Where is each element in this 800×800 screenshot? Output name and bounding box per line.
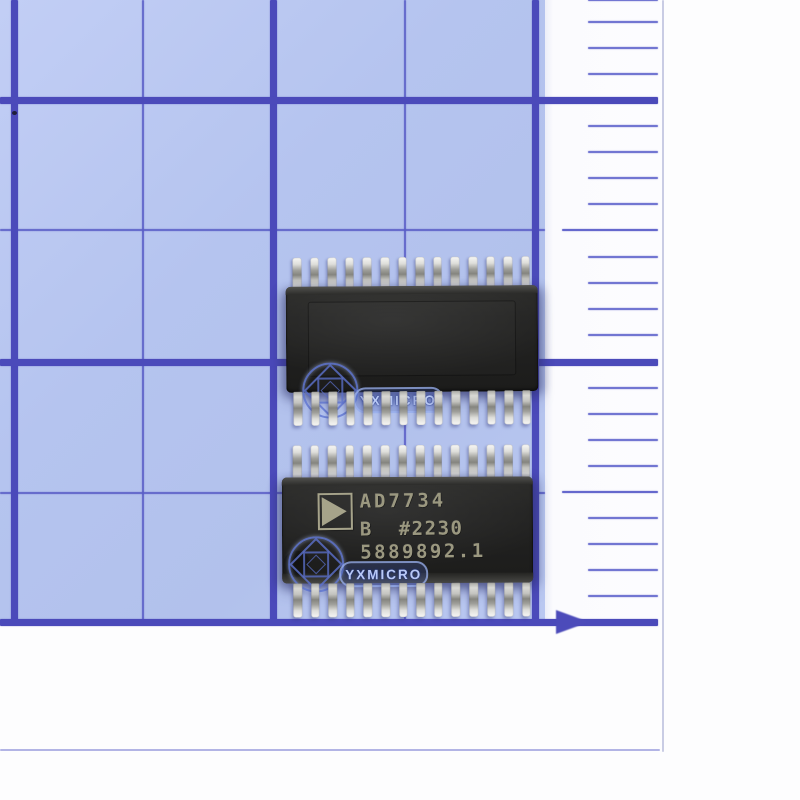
ruler-minor-tick [588, 256, 658, 258]
ic-pin [328, 583, 337, 617]
ruler-minor-tick [588, 334, 658, 336]
ic-pin [451, 445, 460, 479]
ic-pin [346, 391, 355, 425]
grid-line-vertical-major [270, 0, 277, 625]
pin-row-top [293, 444, 539, 479]
ruler-minor-tick [588, 282, 658, 284]
ic-pin [311, 583, 320, 617]
ruler-minor-tick [588, 465, 658, 467]
ruler-minor-tick [588, 569, 658, 571]
ic-pin [329, 392, 338, 426]
ic-chip-bottom: AD7734 B #2230 5889892.1 YXMICRO [280, 442, 544, 621]
ruler-minor-tick [588, 0, 658, 1]
ic-body-marked: AD7734 B #2230 5889892.1 YXMICRO [282, 476, 533, 583]
ic-pin [452, 391, 461, 425]
paper-bottom-line [0, 749, 660, 751]
ruler-arrow-icon [556, 610, 589, 634]
ruler-minor-tick [588, 595, 658, 597]
ruler-mid-tick [562, 229, 658, 231]
photo-scene: YXMICRO AD7734 B #2230 5889892.1 [0, 0, 800, 800]
ic-pin [293, 392, 302, 426]
marking-grade-datecode: B #2230 [360, 519, 464, 539]
ic-pin [486, 445, 495, 479]
ruler-minor-tick [588, 177, 658, 179]
ruler-minor-tick [588, 517, 658, 519]
ruler-edge-line [662, 0, 664, 752]
package-bevel [286, 285, 538, 295]
ic-pin [416, 445, 425, 479]
ruler-minor-tick [588, 308, 658, 310]
ic-pin [293, 583, 302, 617]
grid-line-vertical-major [11, 0, 18, 625]
marking-lot-number: 5889892.1 [360, 542, 486, 563]
ic-pin [364, 391, 373, 425]
ic-pin [433, 445, 442, 479]
ruler-minor-tick [588, 413, 658, 415]
ic-pin [487, 390, 496, 424]
ic-pin [469, 583, 478, 617]
ic-pin [469, 391, 478, 425]
ic-pin [328, 445, 337, 479]
ic-pin [504, 445, 513, 479]
ruler-mid-tick [562, 491, 658, 493]
logo-triangle [322, 497, 347, 526]
ic-chip-top: YXMICRO [282, 254, 546, 428]
ic-pin [381, 391, 390, 425]
ruler-minor-tick [588, 151, 658, 153]
ic-pin [487, 583, 496, 617]
ic-pin [434, 583, 443, 617]
ic-pin [522, 390, 531, 424]
ic-pin [504, 583, 513, 617]
ic-pin [416, 583, 425, 617]
ruler-minor-tick [588, 543, 658, 545]
ic-pin [505, 390, 514, 424]
grid-line-vertical-minor [142, 0, 144, 625]
ic-pin [521, 444, 530, 478]
ic-pin [345, 445, 354, 479]
ruler-minor-tick [588, 125, 658, 127]
grid-line-horizontal-major [0, 97, 658, 104]
ruler-minor-tick [588, 47, 658, 49]
ic-pin [363, 445, 372, 479]
ic-pin [381, 583, 390, 617]
ic-pin [399, 391, 408, 425]
marking-part-number: AD7734 [359, 492, 446, 512]
ruler-minor-tick [588, 73, 658, 75]
ic-pin [522, 582, 531, 616]
pin-row-bottom [293, 390, 539, 426]
ruler-strip [545, 0, 662, 625]
ruler-minor-tick [588, 439, 658, 441]
dust-speck [12, 111, 17, 115]
ic-pin [399, 583, 408, 617]
ic-pin [310, 445, 319, 479]
ic-pin [381, 445, 390, 479]
ruler-minor-tick [588, 203, 658, 205]
ic-pin [398, 445, 407, 479]
ic-pin [434, 391, 443, 425]
ic-pin [311, 392, 320, 426]
ruler-minor-tick [588, 21, 658, 23]
ic-pin [346, 583, 355, 617]
ic-body-back: YXMICRO [286, 285, 539, 393]
ruler-minor-tick [588, 387, 658, 389]
ic-pin [469, 445, 478, 479]
analog-devices-logo-icon [318, 493, 353, 530]
ic-pin [452, 583, 461, 617]
ic-pin [293, 445, 302, 479]
pin-row-bottom [293, 582, 539, 617]
ic-pin [364, 583, 373, 617]
ic-pin [417, 391, 426, 425]
